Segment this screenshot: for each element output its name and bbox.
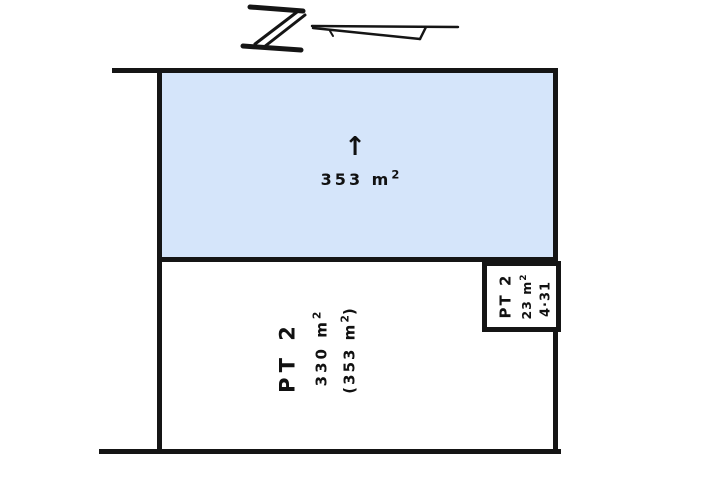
lot-main-total-open: (353 m [341,323,359,394]
lot-blue-region [160,72,553,258]
lot-small-area-sup: 2 [519,274,529,280]
lot-blue-area-sup: 2 [391,168,399,182]
survey-plan: ↑ 353 m2 PT 2 330 m2 (353 m2) PT 2 23 m2… [0,0,712,480]
north-arrow-icon [238,2,468,56]
lot-main-total-label: (353 m2) [343,306,358,393]
lot-small-boundary-dim-label: 4·31 [540,281,553,317]
lot-main-area-label: 330 m2 [315,312,330,387]
lot-blue-area-label: 353 m2 [321,172,400,188]
bottom-boundary-line [99,449,561,454]
lot-small-name-label: PT 2 [499,274,514,319]
lot-main-area-value: 330 m [313,319,331,386]
lot-small-area-label: 23 m2 [521,274,534,319]
lot-main-area-sup: 2 [311,312,324,320]
lot-main-name-label: PT 2 [278,321,299,393]
lot-main-total-sup: 2 [339,315,352,323]
lot-blue-area-value: 353 m [321,170,392,189]
lot-small-area-value: 23 m [519,281,534,320]
lot-main-total-close: ) [341,306,359,315]
top-boundary-line [112,68,558,73]
lot-blue-direction-arrow: ↑ [344,134,366,160]
